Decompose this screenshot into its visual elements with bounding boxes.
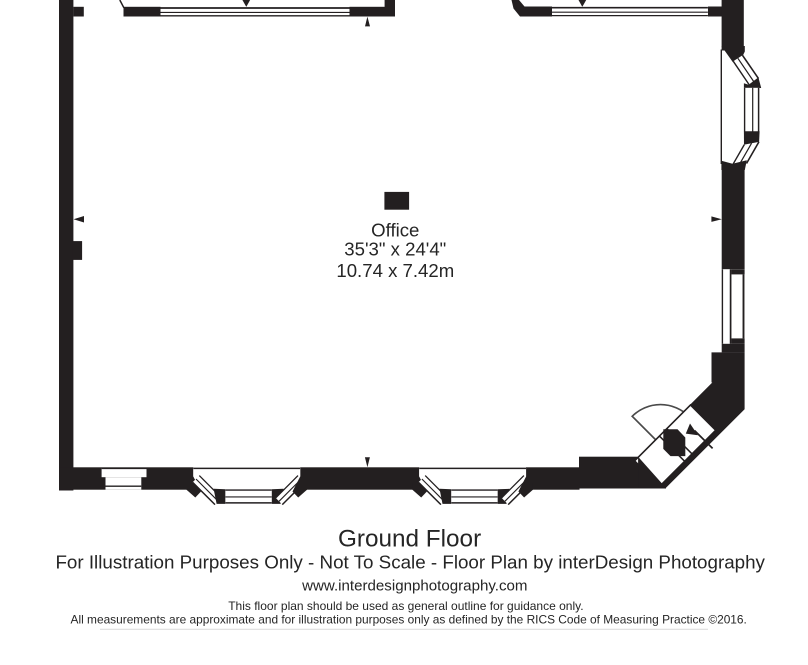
svg-text:Office: Office [371,220,419,241]
svg-text:This floor plan should be used: This floor plan should be used as genera… [228,599,583,613]
svg-text:10.74 x 7.42m: 10.74 x 7.42m [336,260,454,281]
svg-text:www.interdesignphotography.com: www.interdesignphotography.com [301,577,527,594]
svg-text:For Illustration Purposes Only: For Illustration Purposes Only - Not To … [55,551,765,572]
svg-text:All measurements are approxima: All measurements are approximate and for… [71,613,747,627]
svg-text:Ground Floor: Ground Floor [338,526,481,553]
svg-text:35'3" x 24'4": 35'3" x 24'4" [344,238,446,259]
